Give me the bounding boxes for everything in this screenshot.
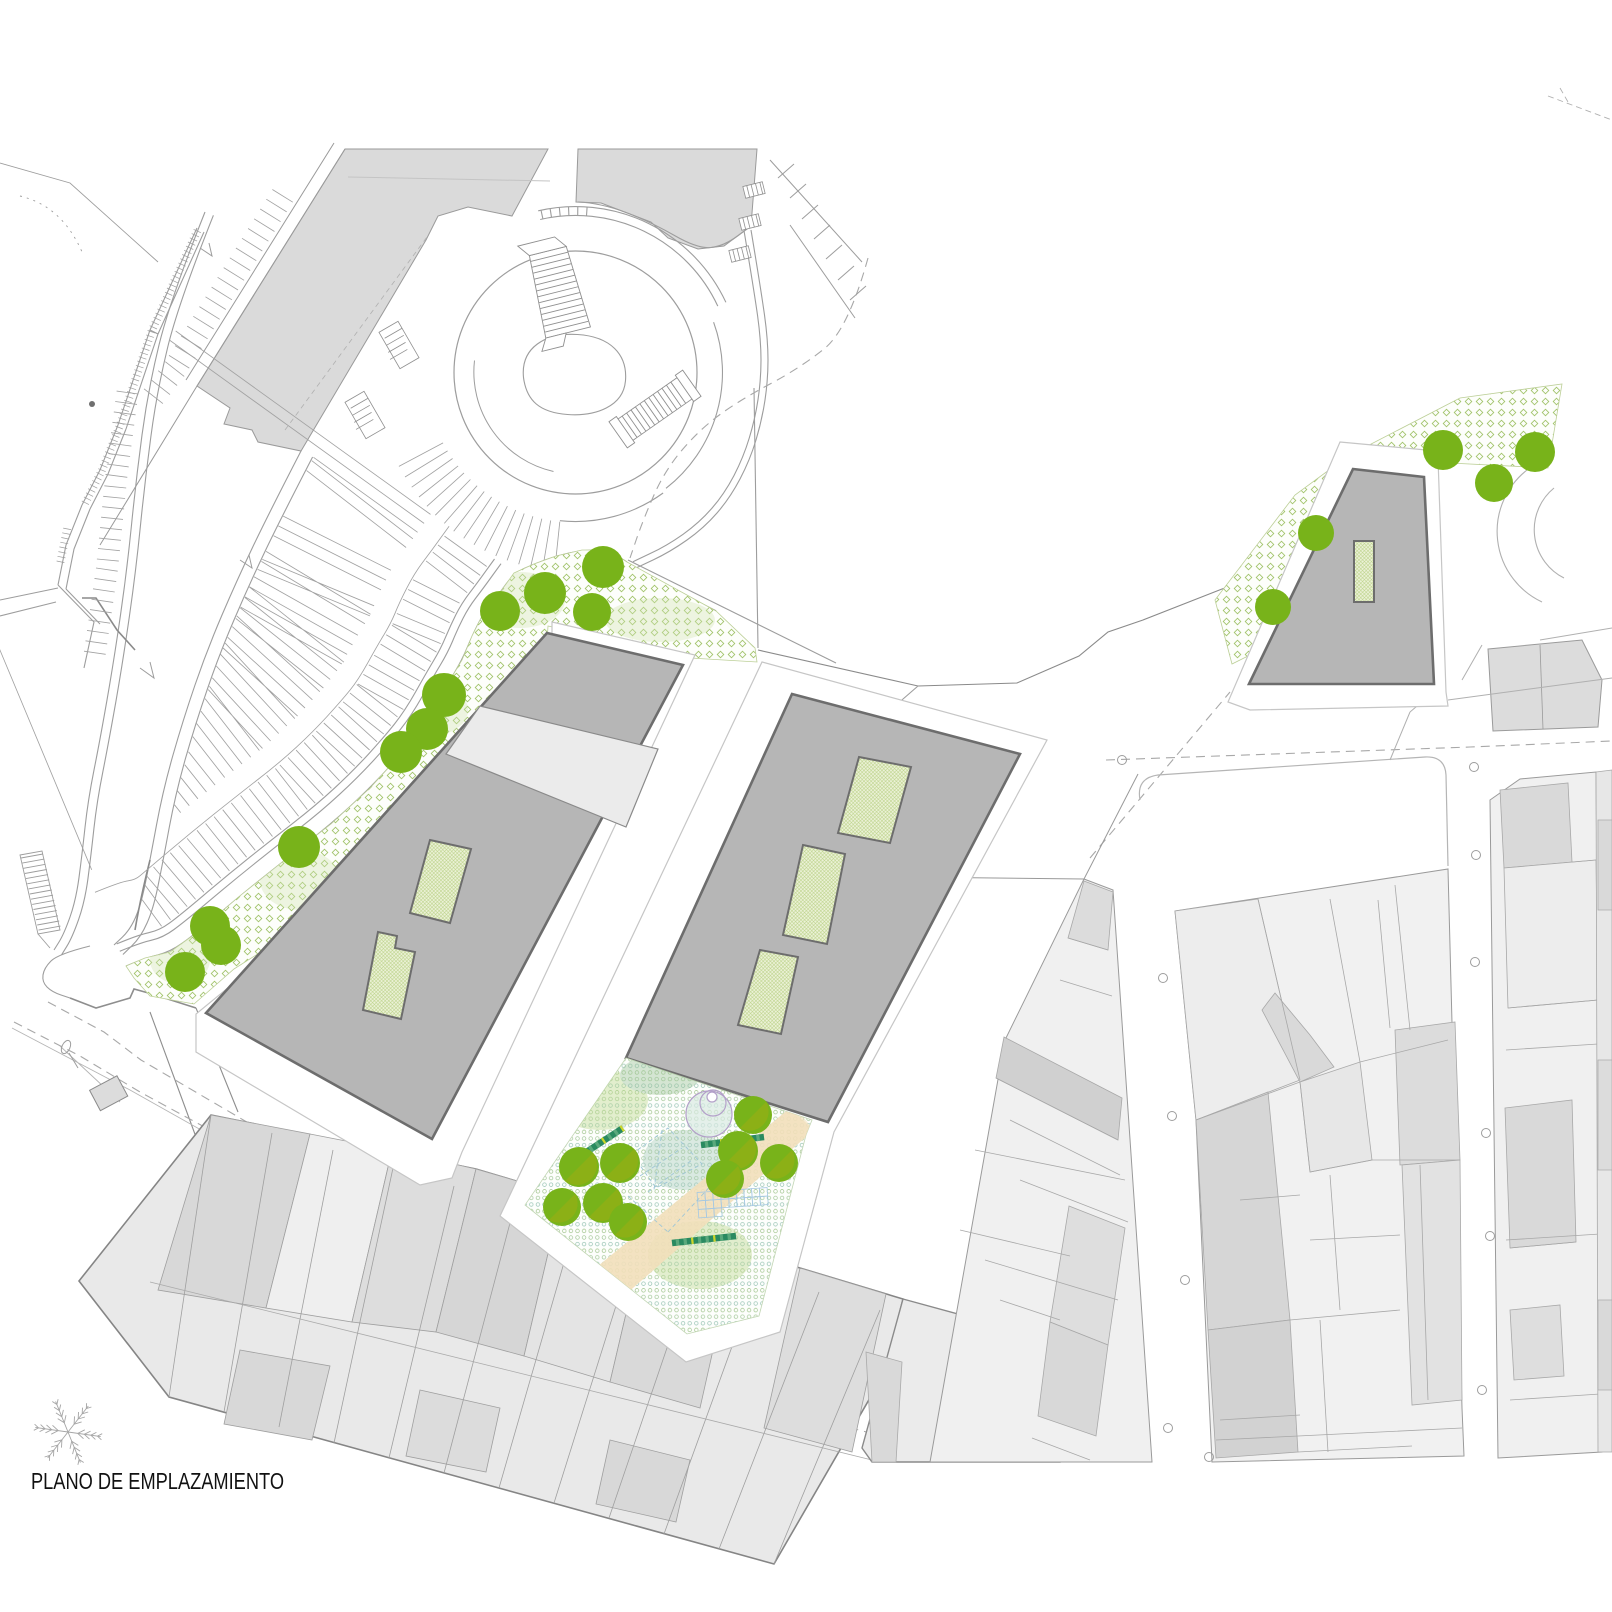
svg-text:PLANO DE EMPLAZAMIENTO: PLANO DE EMPLAZAMIENTO bbox=[31, 1468, 284, 1494]
